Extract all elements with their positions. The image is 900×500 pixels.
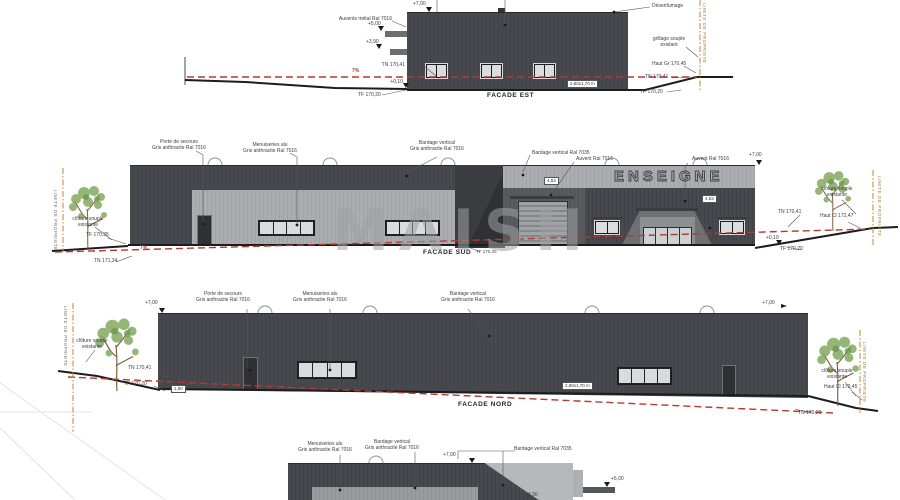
property-limit-text: LIMITE DE PROPRIETE (53, 190, 58, 251)
label-haut-right: Haut Gr 170,45 (652, 61, 686, 67)
facade-nord-title: FACADE NORD (458, 401, 512, 409)
label-grillage: grillage souple existant (648, 36, 690, 49)
label-cloture-left: clôture souple existante (74, 338, 110, 351)
window-pane (482, 65, 491, 77)
window (480, 63, 503, 79)
facade-ouest-inner-panel (312, 487, 478, 500)
property-limit-text: LIMITE DE PROPRIETE (702, 3, 707, 64)
window-pane (301, 222, 314, 234)
window-pane (260, 222, 273, 234)
window-strip (258, 220, 315, 236)
window-strip (617, 367, 672, 385)
label-tn-right: TN 170,41 (645, 74, 668, 80)
window-pane (632, 369, 644, 383)
label-tf-left: TF 170,35 (86, 232, 109, 238)
awning-bar (583, 487, 615, 493)
label-tn-right: TN 170,41 (778, 209, 801, 215)
label-level-500: +5,00 (368, 21, 381, 27)
dimension-box: 4,53 (702, 195, 717, 203)
window-awning (716, 217, 748, 219)
elevation-drawing-sheet: ENSEIGNE (0, 0, 900, 500)
window-pane (313, 363, 326, 377)
window-pane (645, 369, 657, 383)
window-pane (427, 65, 436, 77)
label-tn-bottom-left: TN 171,34 (94, 258, 117, 264)
emergency-exit-door (243, 357, 258, 390)
property-limit-text: LIMITE DE PROPRIETE (877, 176, 882, 237)
watermark-text: MAISH (332, 198, 593, 264)
label-tn-right: TN 170,20 (798, 410, 821, 416)
label-bardage-7035: Bardage vertical Ral 7035 (514, 446, 572, 452)
label-tf-right: TF 170,20 (780, 246, 803, 252)
roof-stack (498, 8, 505, 12)
window-pane (328, 363, 341, 377)
label-haut-right: Haut Cl 170,45 (824, 384, 857, 390)
label-bardage-7016: Bardage vertical Gris anthracite Ral 701… (436, 291, 500, 304)
window-pane (658, 369, 670, 383)
faint-background-lines (0, 383, 165, 500)
label-tn-left: TN 170,41 (128, 365, 151, 371)
label-porte: Porte de secours Gris anthracite Ral 701… (148, 139, 210, 152)
label-level-390: +3,90 (366, 39, 379, 45)
label-tn-left: TN 170,41 (378, 62, 405, 68)
window-pane (299, 363, 312, 377)
dimension-box: 1,80 (171, 385, 186, 393)
property-limit-text: LIMITE DE PROPRIETE (862, 342, 867, 403)
awning-bar (385, 31, 407, 37)
window-strip (297, 361, 357, 379)
emergency-exit-door (197, 215, 212, 245)
window (533, 63, 556, 79)
label-level-010: +0,10 (766, 235, 779, 241)
window-pane (619, 369, 631, 383)
facade-est-title: FACADE EST (487, 92, 534, 100)
label-level-700-left: +7,00 (145, 300, 158, 306)
label-tf-left: TF 170,20 (358, 92, 381, 98)
label-cloture-right: clôture souple existante (818, 186, 856, 199)
window-pane (733, 222, 744, 233)
window (425, 63, 448, 79)
window-pane (596, 222, 607, 233)
label-slope: 7% (352, 68, 359, 74)
window-awning (591, 217, 623, 219)
label-tf-right: TF 170,20 (640, 89, 663, 95)
label-level-700: +7,00 (413, 1, 426, 7)
label-desenfumage: Désenfumage (652, 3, 683, 9)
glass-pane (656, 228, 667, 244)
label-haut-right: Haut Cl 172,47 (820, 213, 853, 219)
dimension-box: 2,80x1,70 m (567, 80, 598, 88)
label-porte: Porte de secours Gris anthracite Ral 701… (192, 291, 254, 304)
window-pane (287, 222, 300, 234)
glass-pane (680, 228, 691, 244)
dimension-box: 4,53 (544, 177, 559, 185)
service-door (722, 365, 736, 396)
label-bardage-7016: Bardage vertical Gris anthracite Ral 701… (405, 140, 469, 153)
label-auvent-2: Auvent Ral 7016 (692, 156, 729, 162)
label-menuiseries: Menuiseries alu Gris anthracite Ral 7016 (288, 291, 352, 304)
dimension-box: 2,80x1,70 m (562, 382, 593, 390)
window-pane (437, 65, 446, 77)
entrance-glass-doors (643, 227, 692, 245)
enseigne-sign-text: ENSEIGNE (614, 168, 724, 185)
label-level-010: +0,10 (387, 79, 403, 85)
label-bardage-7016: Bardage vertical Gris anthracite Ral 701… (360, 439, 424, 452)
label-cloture-right: clôture souple existante (818, 368, 856, 381)
label-menuiseries: Menuiseries alu Gris anthracite Ral 7016 (238, 142, 302, 155)
label-tf-left: TF 170,20 (124, 381, 147, 387)
facade-ouest-side-wall (573, 470, 583, 497)
window-pane (342, 363, 355, 377)
entrance-awning (636, 208, 698, 211)
window (594, 220, 620, 235)
window-pane (535, 65, 544, 77)
label-menuiseries: Menuiseries alu Gris anthracite Ral 7016 (293, 441, 357, 454)
window-pane (492, 65, 501, 77)
label-slope: 7% (140, 245, 147, 251)
window-pane (608, 222, 619, 233)
awning-bar (390, 49, 407, 55)
label-cloture-left: clôture souple existante (70, 216, 106, 229)
label-level-700: +7,00 (749, 152, 762, 158)
label-level-700-right: +7,00 (762, 300, 775, 306)
window (719, 220, 745, 235)
glass-pane (668, 228, 679, 244)
facade-sud-top-band (130, 165, 457, 191)
window-pane (274, 222, 287, 234)
glass-pane (644, 228, 655, 244)
label-level-490: +4,90 (525, 492, 538, 498)
label-auvent-1: Auvent Ral 7016 (576, 156, 613, 162)
label-level-500: +5,00 (611, 476, 624, 482)
tree-icon (815, 171, 851, 231)
window-pane (545, 65, 554, 77)
label-level-700: +7,00 (443, 452, 456, 458)
window-pane (721, 222, 732, 233)
property-limit-text: LIMITE DE PROPRIETE (63, 306, 68, 367)
